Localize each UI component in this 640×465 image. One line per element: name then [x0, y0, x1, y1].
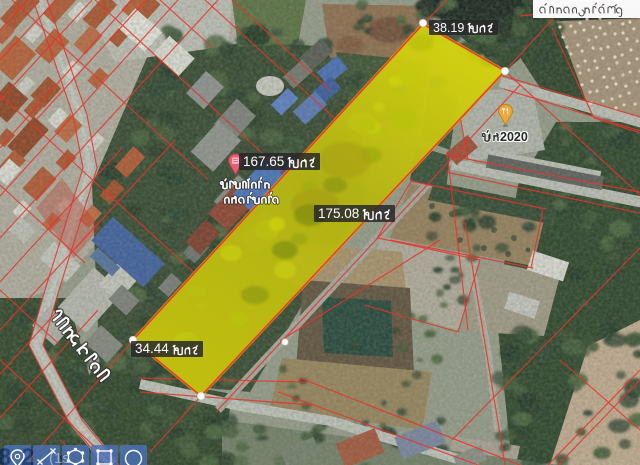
svg-text:8: 8 [0, 444, 11, 465]
svg-text:2: 2 [21, 444, 34, 465]
svg-text:(1s: (1s [49, 450, 70, 465]
svg-text:2020: 2020 [500, 130, 528, 144]
